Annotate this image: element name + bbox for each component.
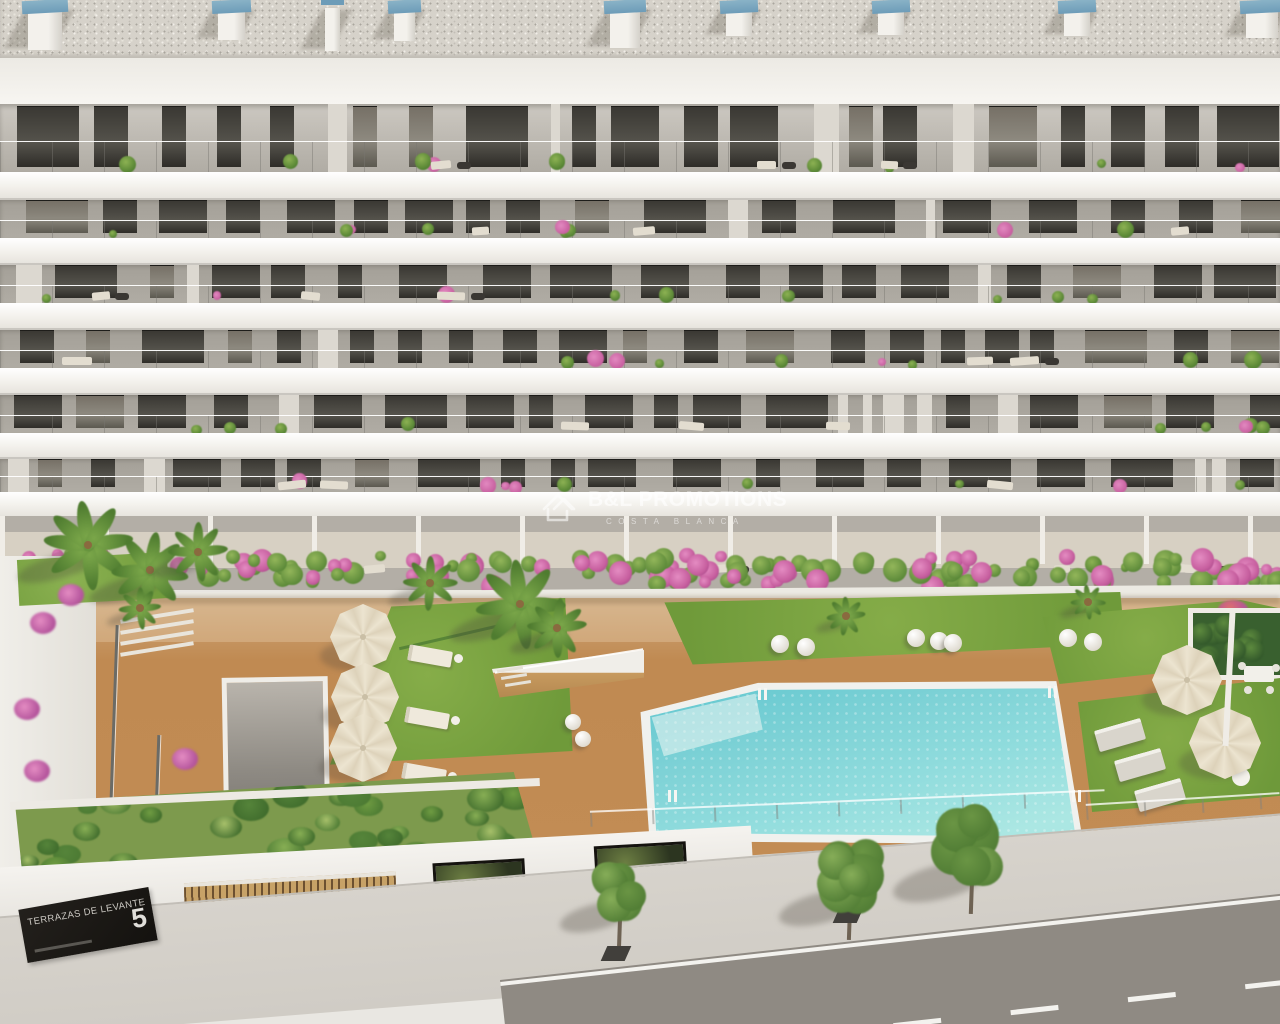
- hedge-shrub: [1013, 569, 1030, 586]
- bougainvillea: [912, 558, 932, 578]
- pouf-seat: [575, 731, 591, 747]
- balcony-flowers: [997, 222, 1013, 238]
- street-tree: [930, 804, 1014, 888]
- balcony-flowers: [509, 481, 522, 492]
- balcony-flowers: [480, 477, 496, 492]
- skylight-panel: [1058, 0, 1097, 14]
- balcony-plant: [109, 230, 117, 238]
- palm-crown: [516, 600, 524, 608]
- bougainvillea: [574, 555, 591, 572]
- hedge-shrub: [1123, 552, 1143, 572]
- terrace-furniture: [1170, 226, 1189, 236]
- tree-foliage: [958, 804, 992, 838]
- balcony-plant: [561, 356, 574, 368]
- bougainvillea: [24, 760, 50, 782]
- balcony-plant: [549, 153, 566, 170]
- lounge-chair: [782, 162, 796, 169]
- terrace-furniture: [757, 161, 776, 169]
- glass-railing: [0, 350, 1280, 368]
- balcony-flowers: [213, 291, 221, 299]
- glass-railing: [0, 476, 1280, 492]
- floor-slab: [0, 433, 1280, 459]
- balcony-plant: [993, 295, 1002, 303]
- pouf-seat: [1059, 629, 1077, 647]
- bougainvillea: [971, 562, 992, 583]
- skylight-panel: [720, 0, 759, 14]
- terrace-chair: [1266, 686, 1274, 694]
- balcony-plant: [1244, 351, 1262, 368]
- planter-plant: [1191, 623, 1213, 645]
- balcony-plant: [807, 158, 822, 172]
- balcony-flowers: [1235, 163, 1244, 172]
- balcony-strip: [0, 328, 1280, 368]
- floor-slab: [0, 238, 1280, 265]
- balcony-plant: [340, 224, 353, 237]
- bougainvillea: [172, 748, 198, 770]
- tropical-plant: [140, 807, 162, 822]
- terrace-furniture: [472, 227, 489, 236]
- balcony-plant: [1087, 294, 1098, 303]
- pool-ladder: [1054, 686, 1057, 698]
- lounge-chair: [903, 162, 917, 169]
- balcony-flowers: [555, 220, 569, 234]
- balcony-plant: [742, 478, 753, 489]
- palm-tree: [1070, 584, 1106, 620]
- palm-crown: [1084, 598, 1092, 606]
- hedge-shrub: [331, 568, 344, 581]
- skylight-panel: [1240, 0, 1280, 14]
- parasol-umbrella: [329, 714, 397, 782]
- balcony-plant: [782, 290, 794, 302]
- balcony-plant: [1183, 352, 1198, 367]
- bougainvillea: [30, 612, 56, 634]
- pouf-seat: [797, 638, 815, 656]
- balcony-strip: [0, 104, 1280, 172]
- terrace-chair: [1238, 662, 1246, 670]
- pouf-seat: [771, 635, 789, 653]
- palm-crown: [136, 604, 144, 612]
- hedge-shrub: [1050, 567, 1066, 583]
- palm-tree: [527, 598, 587, 658]
- balcony-plant: [224, 422, 236, 433]
- terrace-furniture: [825, 422, 849, 431]
- tropical-plant: [210, 816, 242, 838]
- pouf-seat: [907, 629, 925, 647]
- terrace-furniture: [967, 357, 993, 366]
- lounge-chair: [457, 162, 471, 169]
- hedge-shrub: [853, 552, 874, 573]
- pool-ladder: [1048, 686, 1051, 698]
- hedge-shrub: [1169, 553, 1182, 566]
- hedge-shrub: [883, 558, 907, 582]
- umbrella-pole-top: [360, 634, 366, 640]
- skylight-panel: [388, 0, 422, 14]
- terrace-table: [1244, 666, 1274, 682]
- bougainvillea: [609, 561, 632, 584]
- floor-slab: [0, 172, 1280, 200]
- balcony-plant: [422, 223, 434, 235]
- bougainvillea: [773, 560, 796, 583]
- road-dashed-line: [509, 965, 1280, 1024]
- hedge-shrub: [752, 556, 771, 575]
- terrace-furniture: [62, 357, 92, 365]
- rooftop-unit: [610, 8, 640, 48]
- lounge-chair: [1045, 358, 1059, 365]
- balcony-plant: [42, 294, 51, 303]
- glass-railing: [0, 141, 1280, 172]
- tropical-plant: [288, 827, 315, 846]
- pool-ladder: [758, 688, 761, 700]
- umbrella-pole-top: [360, 745, 366, 751]
- tree-foliage: [839, 864, 869, 894]
- tropical-plant: [37, 839, 59, 854]
- terrace-chair: [1244, 686, 1252, 694]
- palm-tree: [168, 522, 228, 582]
- balcony-strip: [0, 393, 1280, 433]
- tropical-plant: [467, 786, 504, 812]
- balcony-strip: [0, 263, 1280, 303]
- balcony-flowers: [878, 358, 886, 366]
- palm-crown: [84, 541, 92, 549]
- terrace-furniture: [320, 480, 349, 489]
- balcony-plant: [1052, 291, 1064, 303]
- tree-foliage: [616, 881, 647, 912]
- hedge-shrub: [306, 551, 328, 573]
- floor-slab: [0, 303, 1280, 330]
- balcony-strip: [0, 457, 1280, 492]
- skylight-panel: [872, 0, 911, 14]
- balcony-plant: [1155, 423, 1166, 433]
- balcony-plant: [610, 290, 620, 300]
- hedge-shrub: [947, 563, 963, 579]
- pouf-seat: [1084, 633, 1102, 651]
- balcony-plant: [275, 423, 287, 433]
- terrace-chair: [1272, 664, 1280, 672]
- pool-ladder: [764, 688, 767, 700]
- terrace-furniture: [437, 292, 465, 301]
- skylight-panel: [22, 0, 69, 14]
- bougainvillea: [14, 698, 40, 720]
- palm-crown: [842, 612, 850, 620]
- bougainvillea: [669, 568, 691, 590]
- balcony-plant: [655, 359, 664, 368]
- pool-ladder: [674, 790, 677, 802]
- street-tree: [812, 838, 888, 914]
- floor-slab: [0, 492, 1280, 518]
- balcony-plant: [908, 360, 917, 368]
- skylight-panel: [212, 0, 252, 14]
- balcony-flowers: [1113, 479, 1127, 492]
- floor-slab: [0, 368, 1280, 395]
- terrace-furniture: [91, 291, 109, 301]
- tropical-plant: [315, 814, 340, 831]
- palm-crown: [426, 579, 434, 587]
- terrace-furniture: [561, 422, 589, 431]
- skylight-panel: [604, 0, 647, 14]
- palm-tree: [403, 556, 457, 610]
- skylight-panel: [321, 0, 344, 5]
- bougainvillea: [727, 569, 741, 583]
- side-table: [451, 716, 460, 725]
- palm-tree: [119, 587, 161, 629]
- balcony-plant: [191, 425, 201, 433]
- tropical-plant: [73, 822, 101, 842]
- rooftop-unit: [28, 8, 62, 50]
- palm-crown: [194, 548, 202, 556]
- facade-fascia: [0, 58, 1280, 105]
- lounge-chair: [115, 293, 129, 300]
- street-tree: [588, 858, 652, 922]
- parasol-umbrella: [1152, 645, 1222, 715]
- bougainvillea: [1191, 548, 1214, 571]
- sign-small-text: [34, 940, 92, 953]
- pouf-seat: [944, 634, 962, 652]
- umbrella-pole-top: [362, 694, 368, 700]
- render-scene: TERRAZAS DE LEVANTE 5 B&L PROMOTIONS COS…: [0, 0, 1280, 1024]
- parasol-umbrella: [330, 604, 396, 670]
- hedge-shrub: [248, 554, 261, 567]
- bougainvillea: [1059, 549, 1075, 565]
- balcony-strip: [0, 198, 1280, 238]
- bougainvillea: [306, 570, 320, 584]
- balcony-flowers: [1239, 420, 1252, 433]
- palm-crown: [553, 624, 561, 632]
- balcony-flowers: [609, 353, 625, 368]
- bougainvillea: [699, 576, 711, 588]
- pouf-seat: [565, 714, 581, 730]
- palm-tree: [827, 597, 866, 636]
- side-table: [454, 654, 463, 663]
- balcony-plant: [119, 156, 136, 172]
- tropical-plant: [421, 806, 444, 822]
- bougainvillea: [687, 554, 709, 576]
- balcony-plant: [659, 287, 674, 302]
- pool-ladder: [668, 790, 671, 802]
- umbrella-pole-top: [1184, 677, 1190, 683]
- terrace-furniture: [881, 161, 898, 170]
- rooftop-unit: [325, 8, 340, 51]
- lounge-chair: [471, 293, 485, 300]
- balcony-plant: [1256, 421, 1270, 433]
- bougainvillea: [715, 551, 726, 562]
- hedge-shrub: [375, 551, 386, 562]
